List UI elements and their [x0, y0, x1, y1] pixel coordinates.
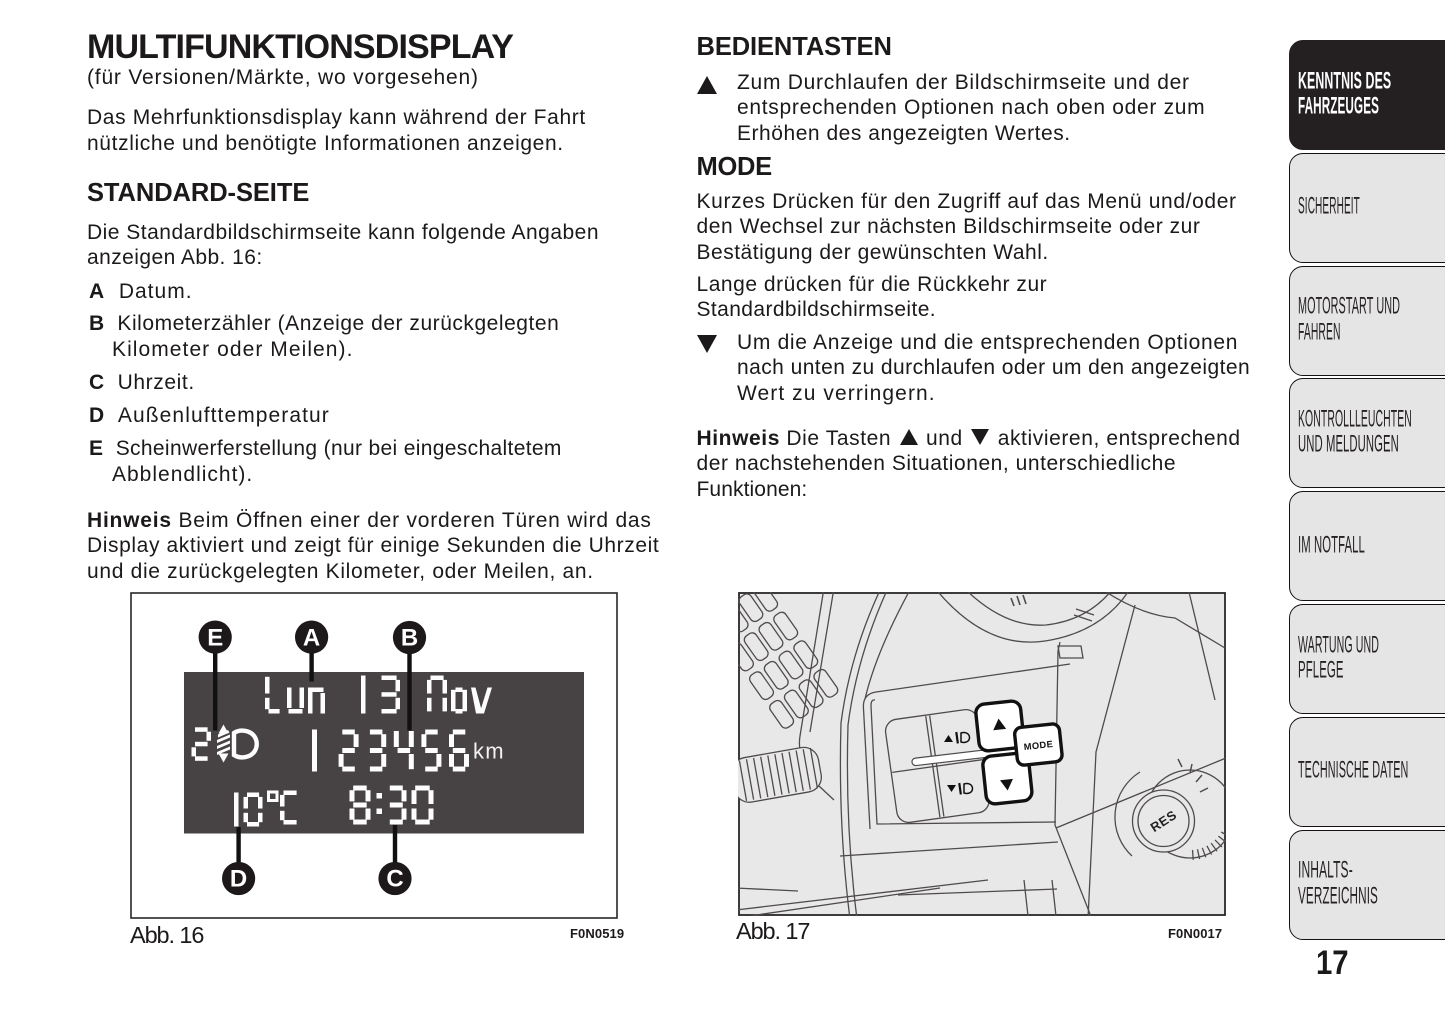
svg-text:C: C: [386, 865, 403, 892]
svg-text:B: B: [401, 624, 418, 651]
svg-text:E: E: [207, 624, 223, 651]
svg-text:km: km: [473, 738, 505, 763]
svg-text:A: A: [303, 624, 320, 651]
svg-text:D: D: [230, 865, 247, 892]
